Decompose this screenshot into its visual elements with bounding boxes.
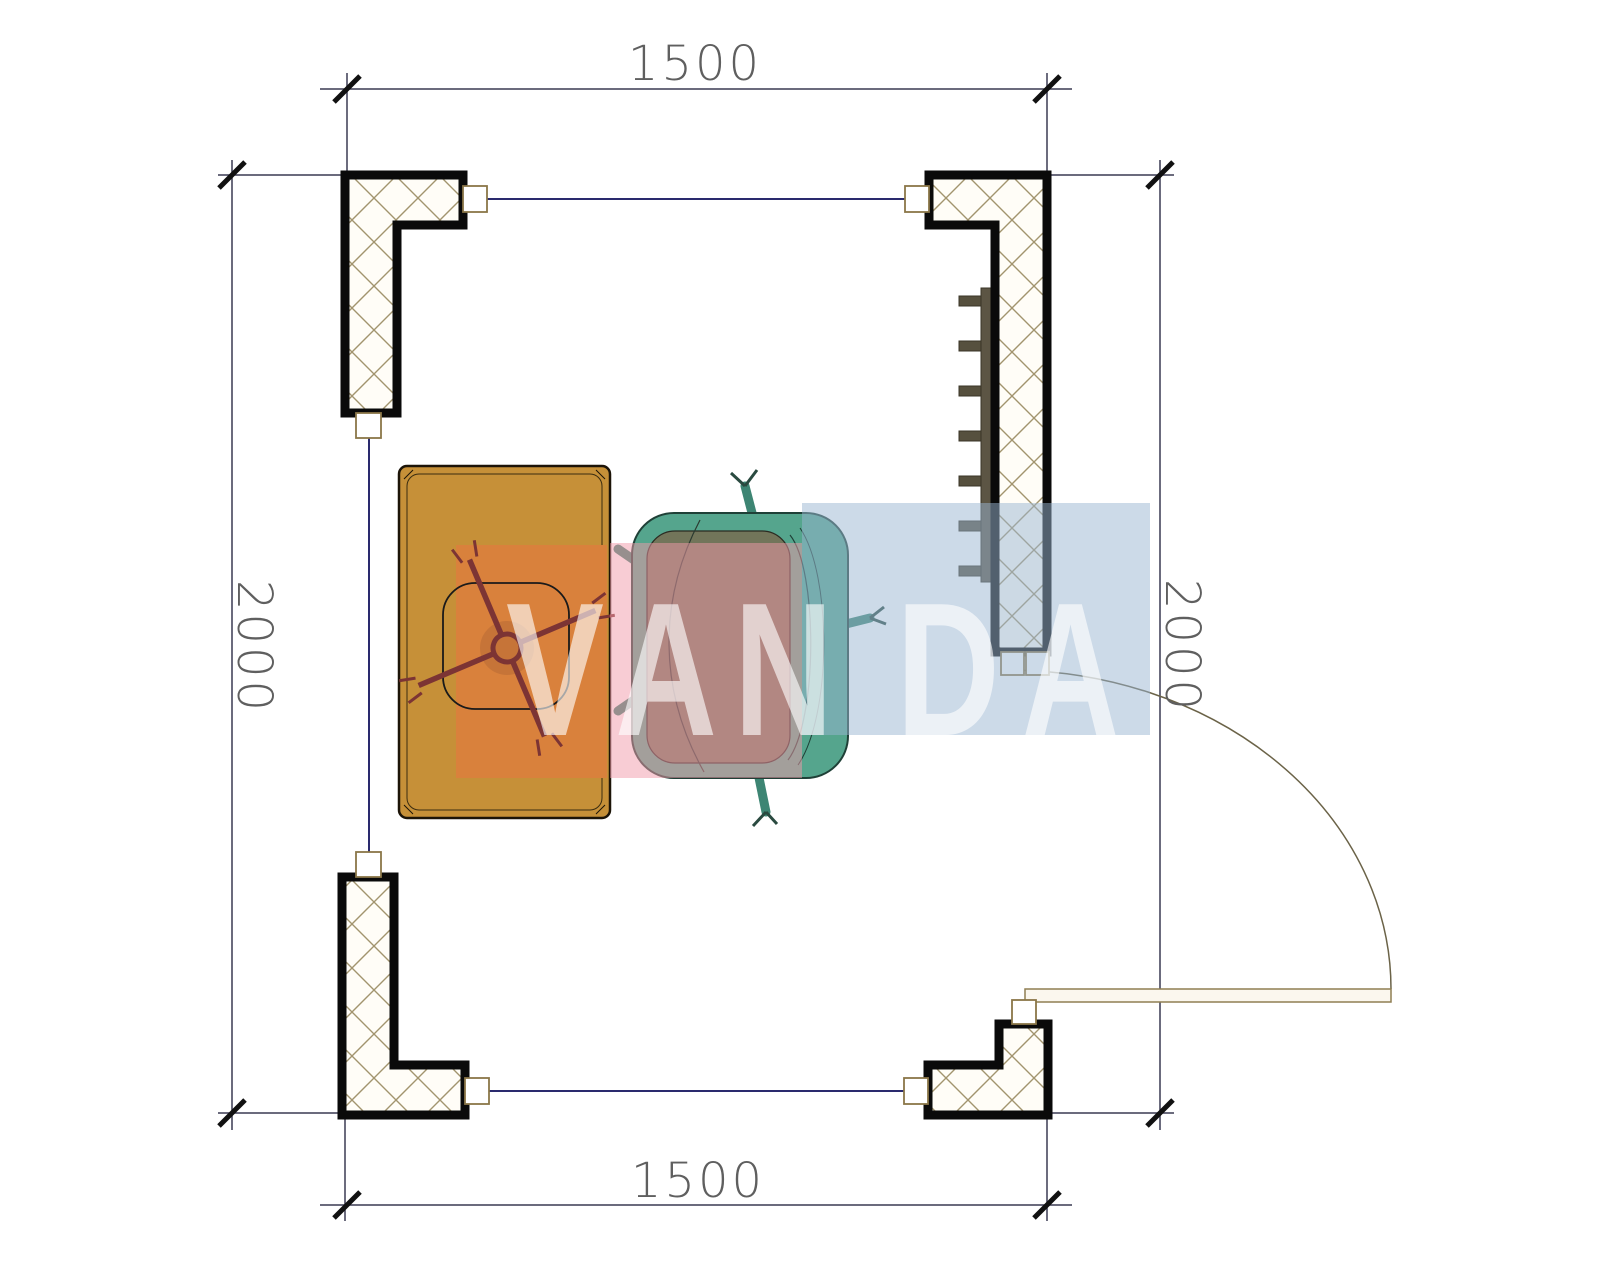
door-leaf [1025, 989, 1391, 1002]
wall-bottom-right [928, 1024, 1048, 1115]
watermark-letter-n: N [734, 564, 833, 776]
wall-bottom-left [342, 877, 465, 1115]
floor-plan-canvas: V A N D A 1500 1500 2000 2000 [0, 0, 1600, 1280]
wall-top-left [345, 175, 463, 413]
watermark-letter-v: V [506, 564, 604, 776]
watermark-letter-a1: A [615, 564, 717, 776]
dimension-top-label: 1500 [628, 36, 762, 92]
dimension-left-label: 2000 [226, 580, 282, 714]
dimension-right-label: 2000 [1154, 579, 1210, 713]
dimension-bottom-label: 1500 [631, 1153, 765, 1209]
watermark-text: V A N D A [506, 564, 1119, 776]
watermark-letter-d: D [896, 564, 1000, 776]
watermark-letter-a2: A [1022, 564, 1119, 776]
